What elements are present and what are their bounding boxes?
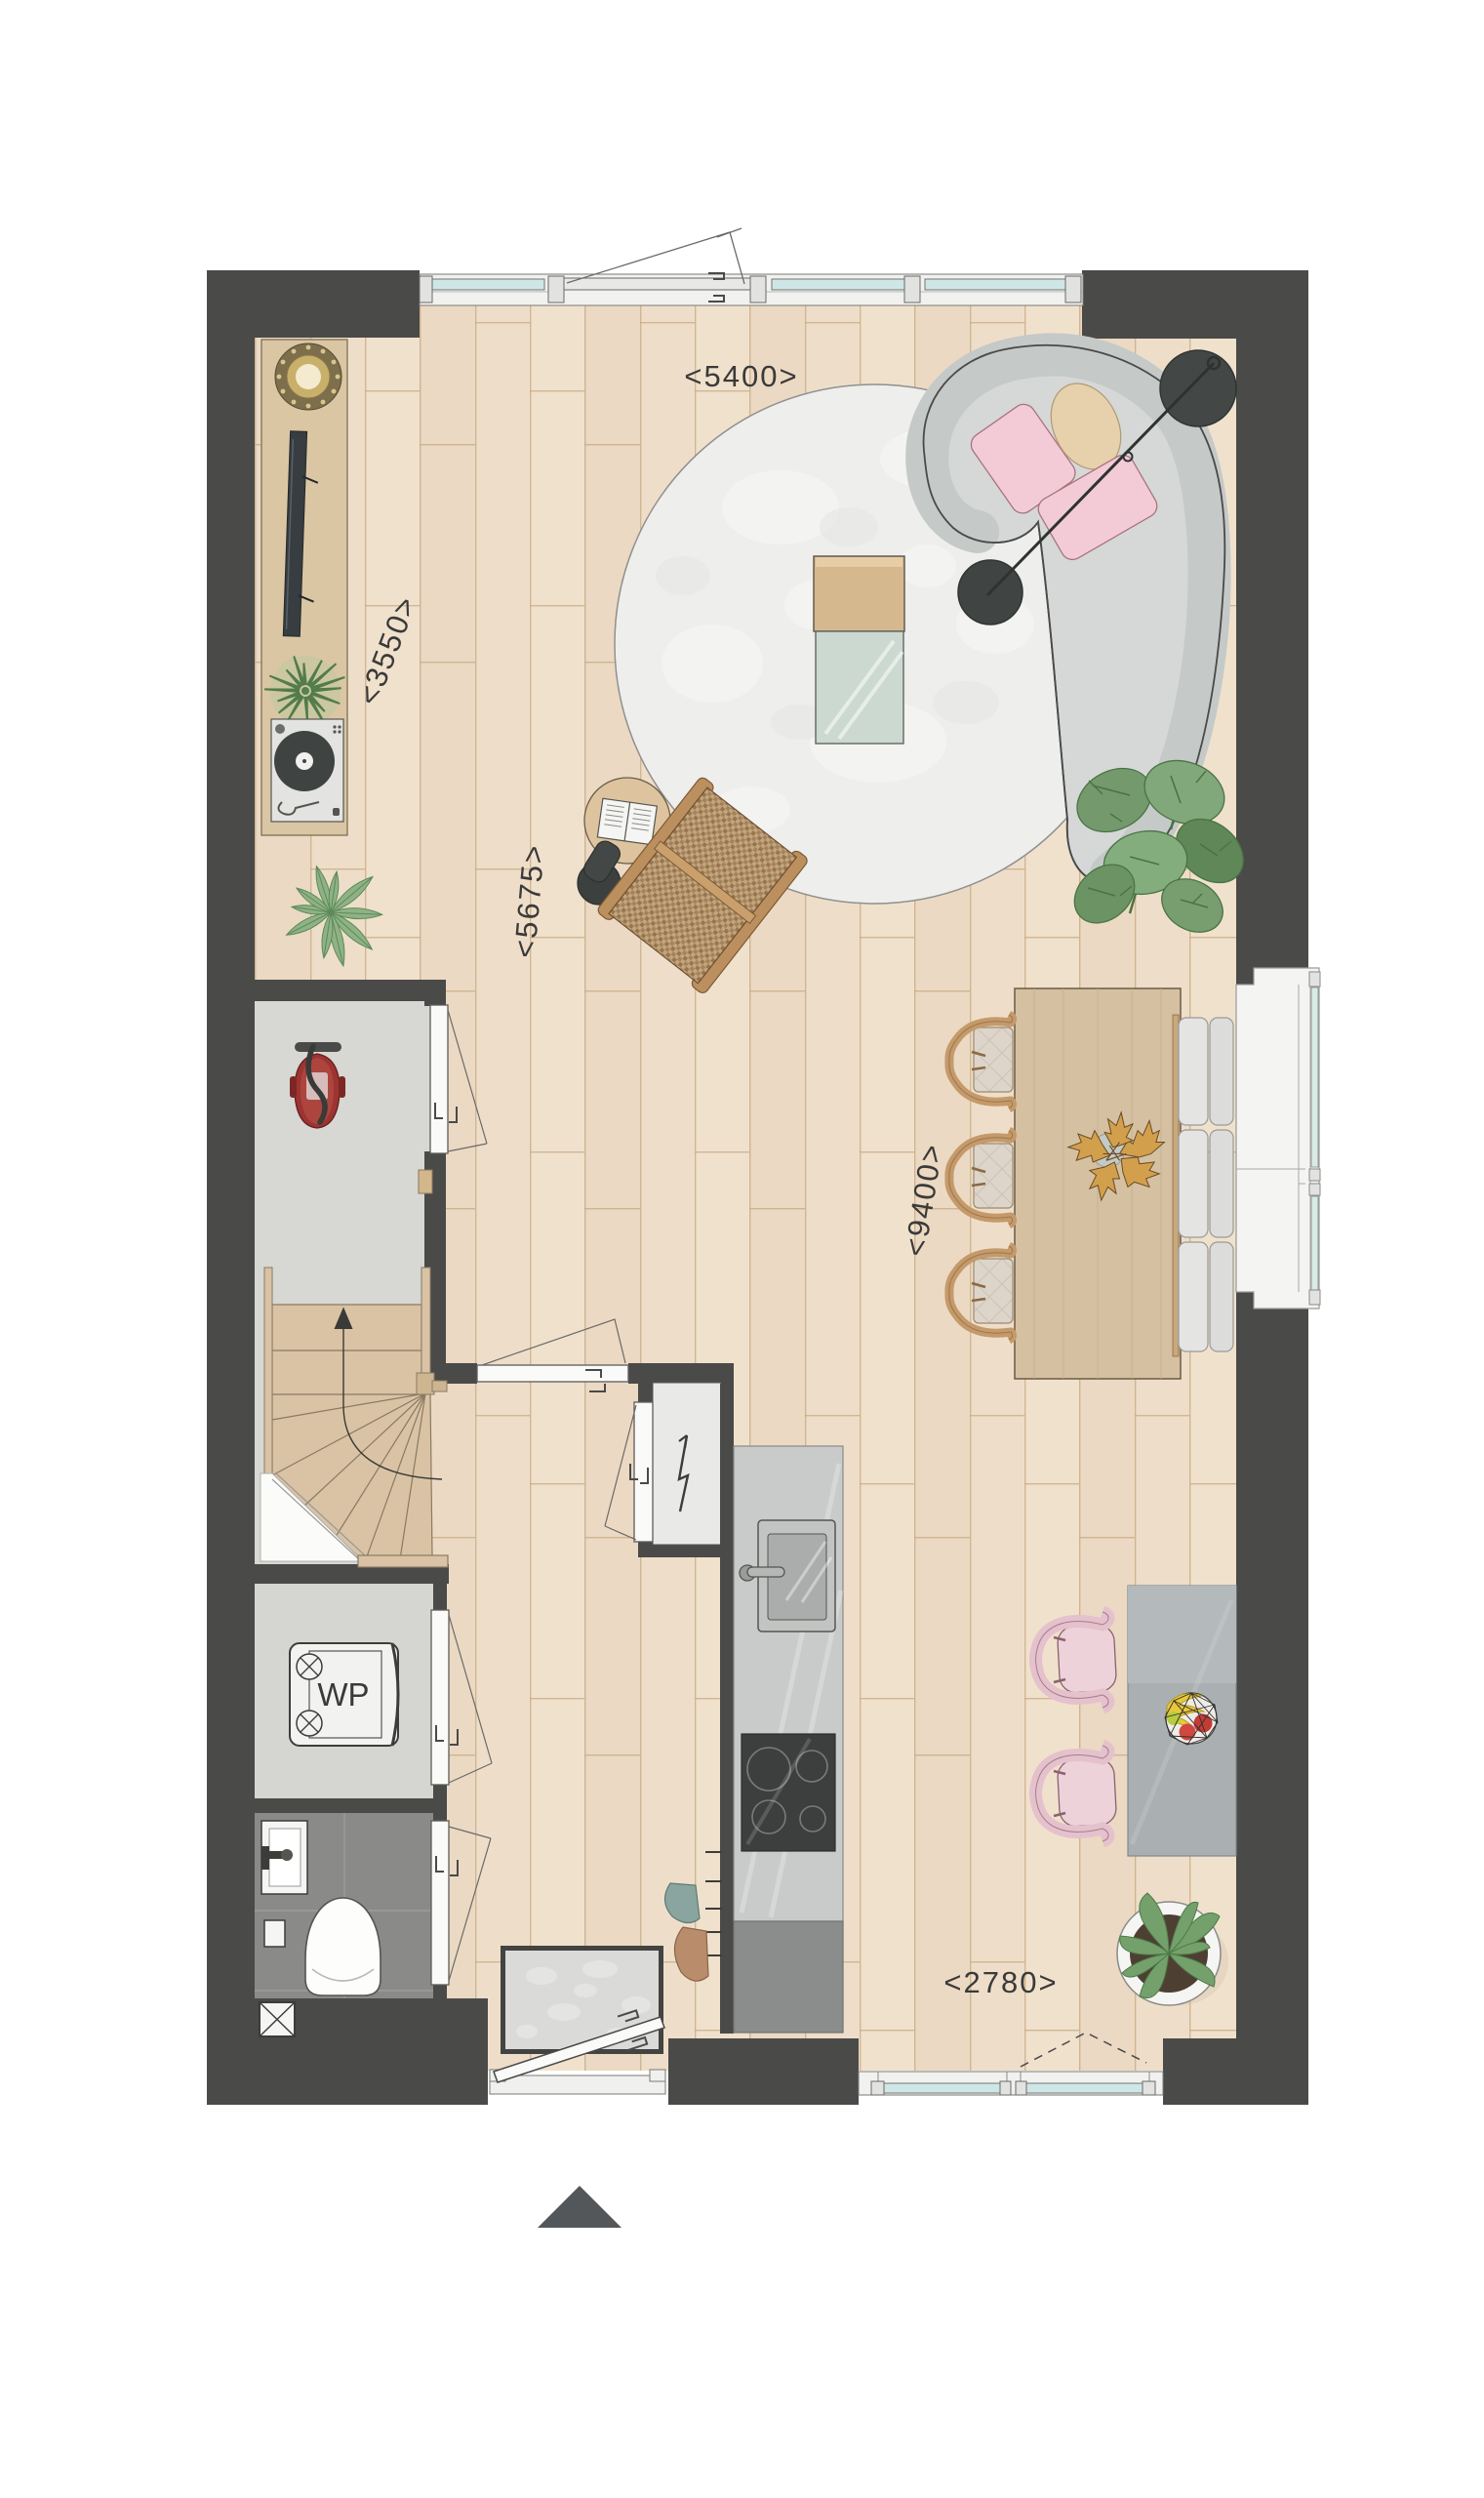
svg-text:WP: WP (317, 1676, 369, 1712)
svg-text:<5400>: <5400> (684, 359, 798, 393)
svg-text:<2780>: <2780> (943, 1965, 1058, 1999)
